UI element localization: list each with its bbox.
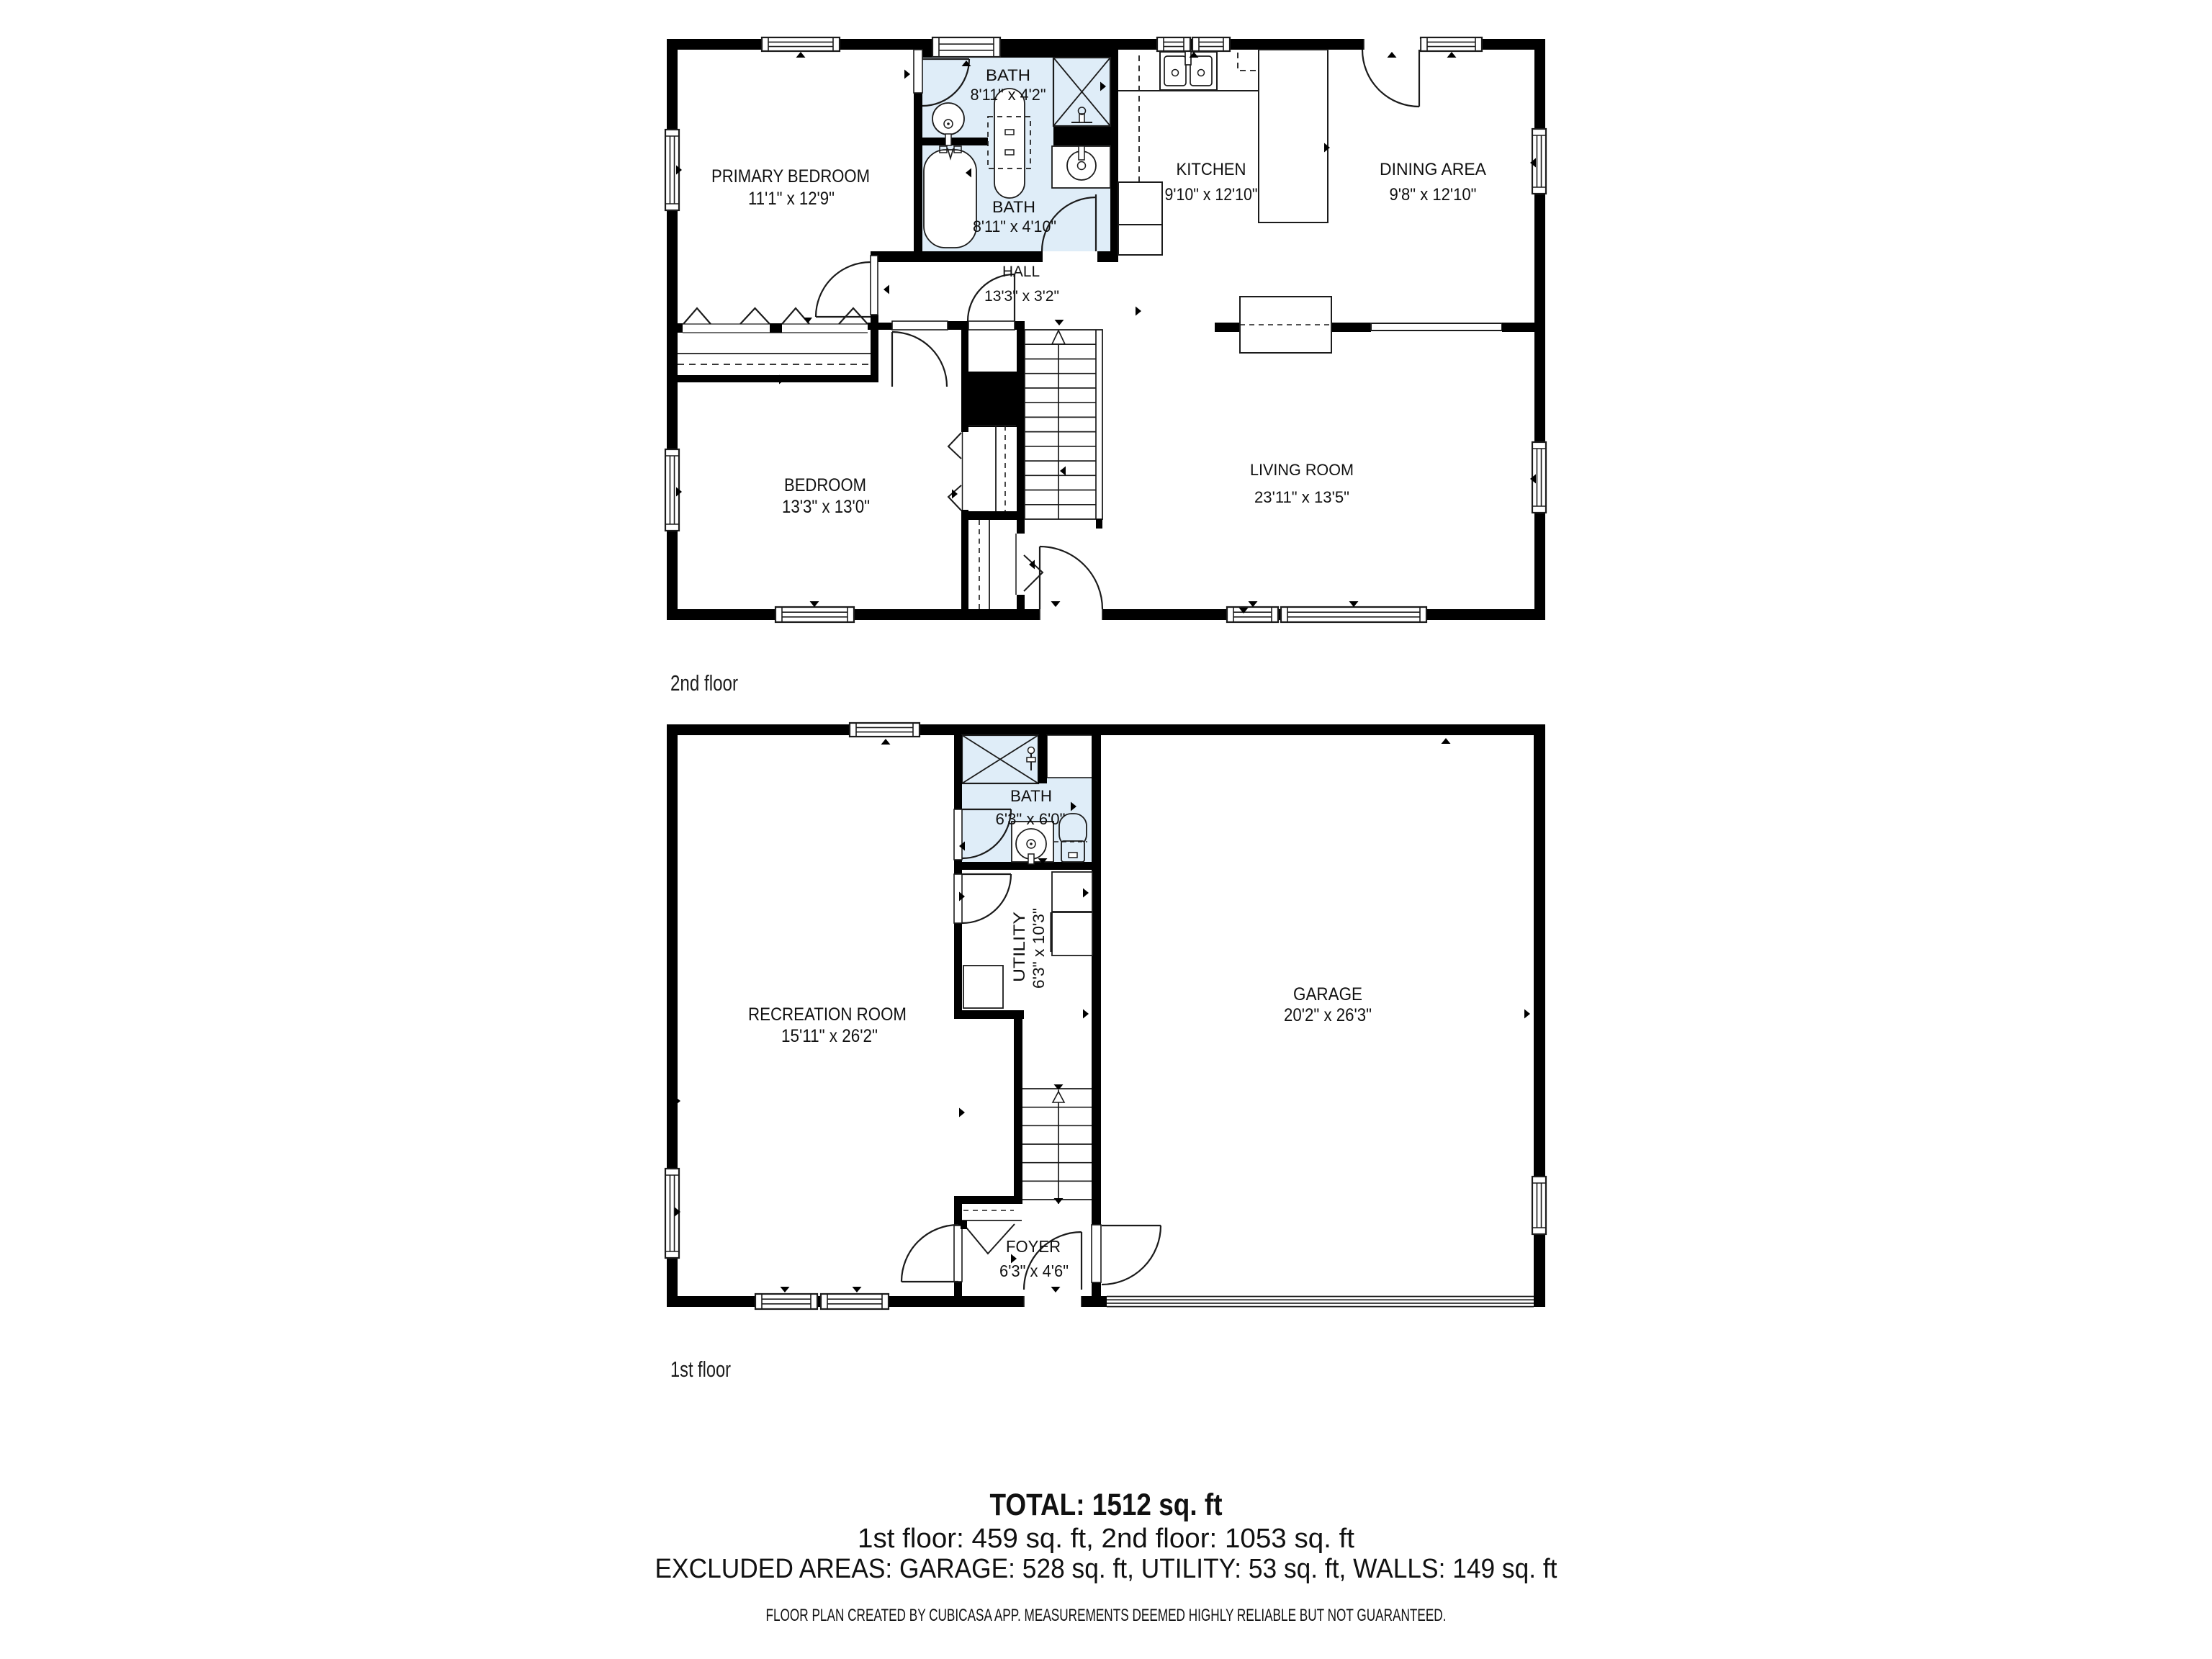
svg-text:11'1" x 12'9": 11'1" x 12'9" bbox=[748, 189, 835, 209]
svg-text:6'3" x 10'3": 6'3" x 10'3" bbox=[1030, 908, 1048, 989]
svg-text:BATH: BATH bbox=[1010, 787, 1052, 805]
svg-text:HALL: HALL bbox=[1002, 264, 1040, 280]
svg-text:RECREATION ROOM: RECREATION ROOM bbox=[748, 1004, 907, 1025]
svg-text:LIVING ROOM: LIVING ROOM bbox=[1250, 461, 1354, 479]
svg-text:BATH: BATH bbox=[992, 198, 1035, 216]
svg-text:9'10" x 12'10": 9'10" x 12'10" bbox=[1165, 185, 1258, 204]
svg-text:FLOOR PLAN CREATED BY CUBICASA: FLOOR PLAN CREATED BY CUBICASA APP. MEAS… bbox=[766, 1606, 1447, 1625]
svg-text:13'3" x 3'2": 13'3" x 3'2" bbox=[984, 288, 1059, 305]
svg-text:FOYER: FOYER bbox=[1006, 1237, 1061, 1256]
svg-text:20'2" x 26'3": 20'2" x 26'3" bbox=[1284, 1005, 1372, 1025]
svg-text:6'3" x 6'0": 6'3" x 6'0" bbox=[996, 810, 1066, 828]
svg-text:15'11" x 26'2": 15'11" x 26'2" bbox=[781, 1026, 878, 1046]
svg-text:BATH: BATH bbox=[986, 66, 1030, 84]
svg-text:8'11" x 4'10": 8'11" x 4'10" bbox=[973, 217, 1056, 235]
svg-text:23'11" x 13'5": 23'11" x 13'5" bbox=[1254, 488, 1349, 506]
svg-text:6'3" x 4'6": 6'3" x 4'6" bbox=[999, 1262, 1069, 1280]
svg-text:KITCHEN: KITCHEN bbox=[1177, 160, 1246, 179]
svg-text:DINING AREA: DINING AREA bbox=[1380, 160, 1486, 179]
svg-text:BEDROOM: BEDROOM bbox=[784, 475, 866, 495]
svg-text:GARAGE: GARAGE bbox=[1293, 984, 1362, 1004]
svg-text:1st floor: 459 sq. ft, 2nd flo: 1st floor: 459 sq. ft, 2nd floor: 1053 s… bbox=[858, 1524, 1354, 1554]
svg-text:EXCLUDED AREAS: GARAGE: 528 sq: EXCLUDED AREAS: GARAGE: 528 sq. ft, UTIL… bbox=[655, 1554, 1557, 1584]
svg-text:8'11" x 4'2": 8'11" x 4'2" bbox=[971, 86, 1046, 104]
svg-text:1st floor: 1st floor bbox=[670, 1357, 731, 1382]
svg-text:TOTAL: 1512 sq. ft: TOTAL: 1512 sq. ft bbox=[990, 1488, 1223, 1522]
svg-text:2nd floor: 2nd floor bbox=[670, 670, 738, 696]
svg-text:13'3" x 13'0": 13'3" x 13'0" bbox=[782, 497, 870, 517]
svg-text:9'8" x 12'10": 9'8" x 12'10" bbox=[1390, 185, 1477, 204]
svg-text:UTILITY: UTILITY bbox=[1010, 912, 1028, 982]
svg-text:PRIMARY BEDROOM: PRIMARY BEDROOM bbox=[711, 166, 870, 186]
